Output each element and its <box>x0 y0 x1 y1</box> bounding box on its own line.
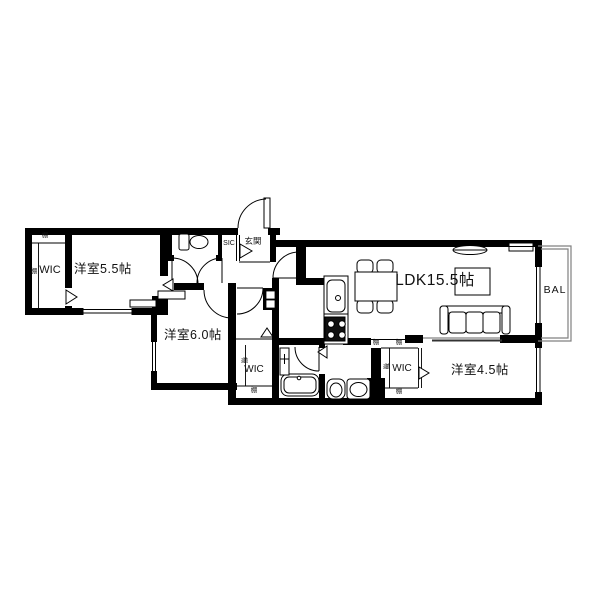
room60-door <box>204 290 232 318</box>
room55-door-marker <box>163 279 173 291</box>
room-6-0-label: 洋室6.0帖 <box>152 329 234 342</box>
ldk-door <box>273 252 299 278</box>
floorplan-canvas <box>0 0 600 600</box>
counter-room55 <box>130 300 156 307</box>
bath-door <box>295 347 319 371</box>
ac-unit <box>509 243 533 251</box>
toilet-fixture <box>179 234 208 250</box>
shelf-label-washroom: 棚 <box>369 340 383 347</box>
wic1-door-marker <box>66 290 77 304</box>
entrance-label: 玄関 <box>238 237 268 246</box>
shelf-label-wic2-top: 棚 <box>392 340 406 347</box>
wic2-label: WIC <box>384 364 420 374</box>
entrance-door <box>238 198 270 228</box>
wic2-door-marker <box>419 367 429 379</box>
bathtub <box>281 374 319 396</box>
shelf-label-wic2-left: 棚 <box>382 359 389 373</box>
shower-unit <box>280 348 289 375</box>
washbasin <box>347 379 370 399</box>
wic3-door-marker <box>261 328 273 337</box>
shelf-label-wic3-left: 棚 <box>240 353 247 367</box>
balcony-label: BAL <box>539 285 571 296</box>
ldk-label: LDK15.5帖 <box>383 273 487 289</box>
sofa <box>440 306 510 334</box>
entrance-step-marker <box>240 244 252 258</box>
room-5-5-label: 洋室5.5帖 <box>62 263 144 276</box>
kitchen-counter <box>324 276 348 344</box>
shelf-label-wic2-bottom: 棚 <box>392 389 406 396</box>
hall-door-left <box>172 258 198 284</box>
washroom-toilet <box>327 379 345 399</box>
ceiling-light <box>453 246 487 255</box>
shelf-label-wic3-bottom: 棚 <box>247 388 261 395</box>
shelf-label-wic1-top: 棚 <box>38 233 52 240</box>
sliding-door-ldk-room45 <box>423 338 502 341</box>
shelf-label-wic1-left: 棚 <box>27 269 41 276</box>
floorplan-page: 洋室5.5帖 洋室6.0帖 洋室4.5帖 LDK15.5帖 WIC WIC WI… <box>0 0 600 600</box>
inner-hall-door <box>237 288 263 314</box>
counter-room60 <box>158 291 185 299</box>
room-4-5-label: 洋室4.5帖 <box>439 364 521 377</box>
toilet-door <box>197 258 222 283</box>
